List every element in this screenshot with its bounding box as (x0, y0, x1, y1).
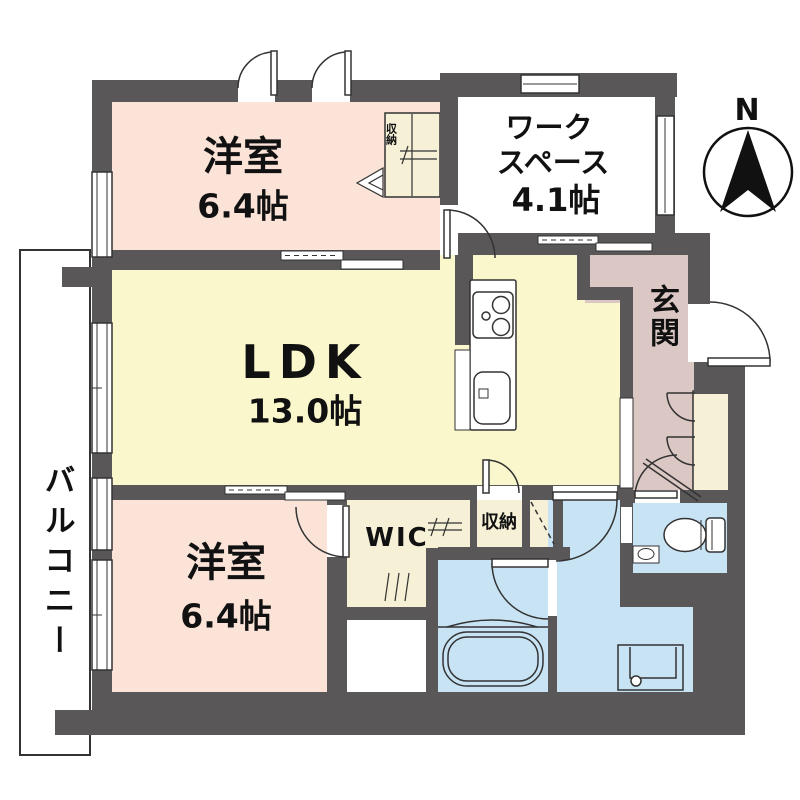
sliding-door-panel (341, 260, 403, 269)
wall-segment (92, 80, 238, 102)
door-leaf (444, 210, 450, 258)
door-leaf (345, 51, 351, 95)
wall-segment (688, 250, 710, 306)
opening-front-door (688, 304, 710, 362)
wall-segment (470, 490, 477, 547)
bathroom-floor (430, 548, 557, 694)
balcony-name: バルコニー (41, 464, 72, 664)
floorplan-drawing (0, 0, 800, 800)
bedroom-bottom-name: 洋室 (186, 543, 266, 583)
kitchen-side-counter (455, 350, 470, 430)
wall-segment (620, 300, 633, 400)
wall-segment (55, 710, 95, 735)
bedroom-top-name: 洋室 (203, 137, 283, 177)
wall-segment (275, 80, 312, 102)
hall-door (620, 398, 633, 488)
wall-segment (548, 616, 557, 692)
wall-segment (694, 362, 745, 394)
closet-top-name: 収納 (386, 123, 397, 145)
front-door-arc (710, 302, 770, 362)
wall-segment (347, 607, 430, 620)
wall-segment (727, 503, 745, 575)
window-icon (92, 172, 112, 257)
ldk-name: LDK (241, 339, 368, 385)
opening (621, 507, 632, 543)
workspace-area: 4.1帖 (512, 184, 601, 216)
bedroom-top-area: 6.4帖 (197, 190, 288, 223)
wall-bottom (92, 692, 745, 735)
wall-segment (577, 243, 590, 289)
wall-segment (620, 573, 745, 607)
storage-name: 収納 (481, 514, 517, 532)
opening (548, 560, 557, 616)
compass-north-label: N (734, 96, 759, 126)
door-leaf (553, 492, 617, 500)
door-leaf (483, 460, 489, 493)
door-leaf (271, 51, 277, 95)
door-leaf (343, 506, 349, 557)
toilet-bowl (664, 519, 706, 552)
drain (631, 676, 641, 686)
window-icon (92, 478, 112, 550)
sliding-door-panel (596, 243, 652, 251)
toilet-tank (706, 518, 725, 552)
workspace-name-line2: スペース (497, 149, 610, 178)
ldk-area: 13.0帖 (248, 395, 362, 428)
floorplan: 洋室 6.4帖 ワーク スペース 4.1帖 LDK 13.0帖 玄関 洋室 6.… (0, 0, 800, 800)
wall-segment (728, 394, 745, 498)
sliding-door-panel (285, 492, 345, 500)
compass-icon (704, 128, 792, 216)
bedroom-bottom-floor (100, 495, 345, 695)
bedroom-bottom-area: 6.4帖 (180, 600, 271, 633)
wall-segment (438, 547, 570, 560)
opening (238, 80, 275, 102)
wall-segment (522, 490, 530, 547)
wall-segment (693, 607, 745, 694)
door-leaf (492, 559, 548, 567)
wall-segment (577, 287, 633, 300)
door-leaf (635, 491, 677, 498)
wic-name: WIC (365, 525, 428, 551)
entrance-name: 玄関 (646, 284, 676, 350)
workspace-name-line1: ワーク (505, 114, 592, 143)
front-door-leaf (708, 358, 770, 366)
shoe-cabinet (693, 391, 730, 492)
